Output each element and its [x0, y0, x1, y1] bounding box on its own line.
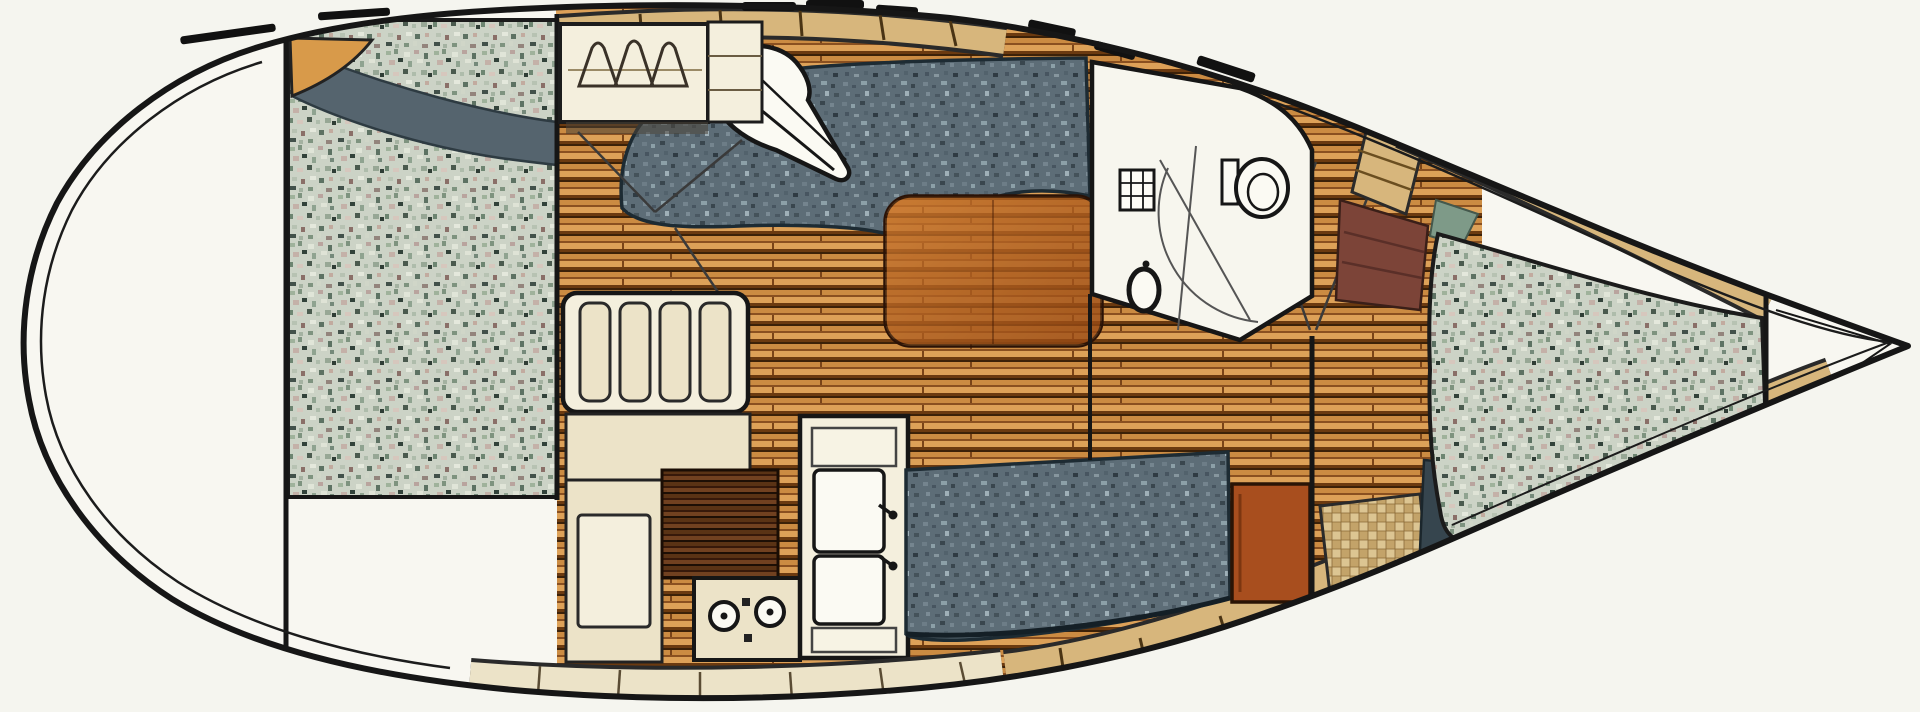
sink-basin	[814, 556, 884, 624]
galley-stove	[694, 578, 800, 660]
floorplan-svg	[0, 0, 1920, 712]
locker-shelf-box	[708, 22, 762, 122]
saloon-table	[885, 196, 1102, 346]
locker-shadow	[566, 122, 708, 134]
companionway-steps	[563, 293, 748, 412]
hanging-locker	[560, 24, 708, 122]
galley-icebox-lid	[578, 515, 650, 627]
shower-grate	[1120, 170, 1154, 210]
rust-cabinet	[1232, 484, 1310, 602]
sink-basin	[814, 470, 884, 552]
galley-double-sink	[800, 416, 908, 658]
boat-floorplan	[0, 0, 1920, 712]
faucet-icon	[1143, 261, 1150, 268]
galley-dark-counter	[662, 470, 778, 578]
